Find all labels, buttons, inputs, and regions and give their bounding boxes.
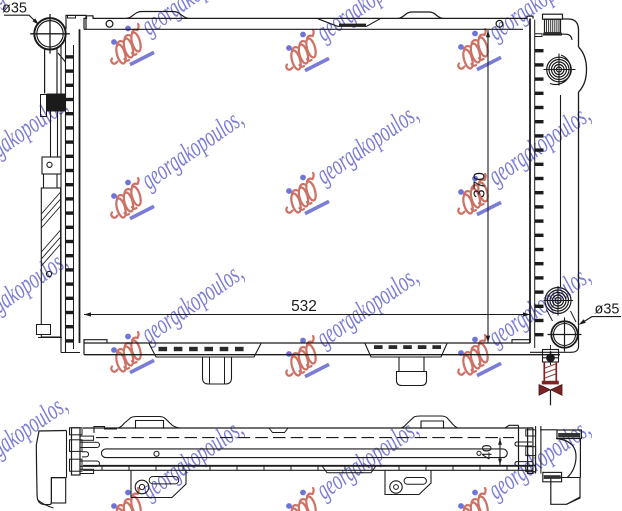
svg-text:ø35: ø35 bbox=[595, 301, 620, 317]
svg-text:370: 370 bbox=[472, 172, 489, 198]
svg-text:532: 532 bbox=[291, 298, 317, 315]
svg-text:ø35: ø35 bbox=[2, 0, 27, 16]
svg-text:40: 40 bbox=[480, 444, 495, 459]
